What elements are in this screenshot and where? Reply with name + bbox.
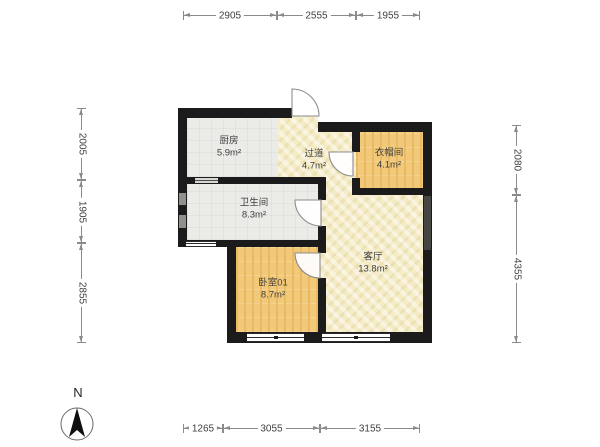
hallway-area: 4.7m²	[302, 161, 326, 173]
dim-value: 2905	[216, 11, 244, 22]
dim-left-3: 2855	[74, 243, 90, 343]
arrow-left-icon	[278, 13, 284, 17]
dim-value: 2080	[512, 146, 523, 174]
dim-bottom-3: 3155	[320, 421, 420, 437]
arrow-up-icon	[79, 109, 83, 115]
dim-value: 1905	[77, 197, 88, 225]
arrow-down-icon	[514, 188, 518, 194]
kitchen-label: 厨房 5.9m²	[217, 136, 241, 161]
hallway-label: 过道 4.7m²	[302, 149, 326, 174]
kitchen-area: 5.9m²	[217, 148, 241, 160]
arrow-down-icon	[514, 336, 518, 342]
wall-hall-divider-middle	[318, 226, 326, 253]
arrow-right-icon	[313, 426, 319, 430]
right-wall-shaft	[424, 196, 431, 250]
wall-cloakroom-left-upper	[352, 122, 360, 152]
hallway-name: 过道	[302, 149, 326, 161]
compass-icon	[59, 406, 96, 443]
dim-value: 2005	[77, 130, 88, 158]
living-room-name: 客厅	[358, 252, 388, 264]
left-wall-vent-upper	[179, 193, 186, 205]
arrow-up-icon	[514, 126, 518, 132]
living-room-area: 13.8m²	[358, 264, 388, 276]
floor-plan: 厨房 5.9m² 过道 4.7m² 衣帽间 4.1m² 卫生间 8.3m² 卧室…	[0, 0, 600, 447]
cloakroom-name: 衣帽间	[375, 148, 404, 160]
dim-right-2: 4355	[509, 195, 525, 343]
dim-value: 3155	[356, 424, 384, 435]
wall-top-right	[318, 122, 432, 132]
bathroom-label: 卫生间 8.3m²	[240, 198, 269, 223]
bathroom-area: 8.3m²	[240, 210, 269, 222]
arrow-up-icon	[79, 181, 83, 187]
wall-cloakroom-bottom	[352, 188, 432, 195]
arrow-right-icon	[349, 13, 355, 17]
arrow-up-icon	[514, 196, 518, 202]
bathroom-name: 卫生间	[240, 198, 269, 210]
wall-bedroom-left	[227, 240, 236, 343]
dim-value: 2855	[77, 279, 88, 307]
dim-bottom-1: 1265	[183, 421, 223, 437]
kitchen-name: 厨房	[217, 136, 241, 148]
bedroom-area: 8.7m²	[258, 290, 288, 302]
dim-value: 2555	[302, 11, 330, 22]
arrow-down-icon	[79, 236, 83, 242]
dim-left-1: 2005	[74, 108, 90, 180]
living-window-mullion	[354, 336, 358, 339]
wall-hall-divider-upper	[318, 177, 326, 200]
dim-top-3: 1955	[356, 8, 420, 24]
arrow-left-icon	[357, 13, 363, 17]
arrow-down-icon	[79, 173, 83, 179]
dim-value: 4355	[512, 255, 523, 283]
bedroom-name: 卧室01	[258, 278, 288, 290]
compass-needle	[69, 408, 85, 437]
compass-circle	[61, 408, 93, 440]
living-room-label: 客厅 13.8m²	[358, 252, 388, 277]
entrance-door-arc	[292, 89, 319, 116]
arrow-left-icon	[321, 426, 327, 430]
dim-value: 1955	[374, 11, 402, 22]
arrow-right-icon	[270, 13, 276, 17]
cloakroom-area: 4.1m²	[375, 160, 404, 172]
dim-value: 3055	[257, 424, 285, 435]
bedroom-window-mullion	[274, 336, 278, 339]
arrow-left-icon	[184, 13, 190, 17]
arrow-right-icon	[413, 13, 419, 17]
left-wall-vent-lower	[179, 215, 186, 228]
dim-bottom-2: 3055	[223, 421, 320, 437]
dim-right-1: 2080	[509, 125, 525, 195]
wall-hall-divider-lower	[318, 278, 326, 332]
arrow-right-icon	[413, 426, 419, 430]
compass-north-label: N	[69, 385, 87, 400]
bedroom-label: 卧室01 8.7m²	[258, 278, 288, 303]
bathroom-window	[186, 241, 216, 247]
arrow-up-icon	[79, 244, 83, 250]
wall-cloakroom-left-lower	[352, 178, 360, 195]
wall-top-kitchen	[178, 108, 292, 118]
cloakroom-label: 衣帽间 4.1m²	[375, 148, 404, 173]
arrow-down-icon	[79, 336, 83, 342]
dim-left-2: 1905	[74, 180, 90, 243]
dim-value: 1265	[189, 424, 217, 435]
dim-top-2: 2555	[277, 8, 356, 24]
arrow-left-icon	[224, 426, 230, 430]
kitchen-pass-window	[195, 178, 218, 183]
dim-top-1: 2905	[183, 8, 277, 24]
